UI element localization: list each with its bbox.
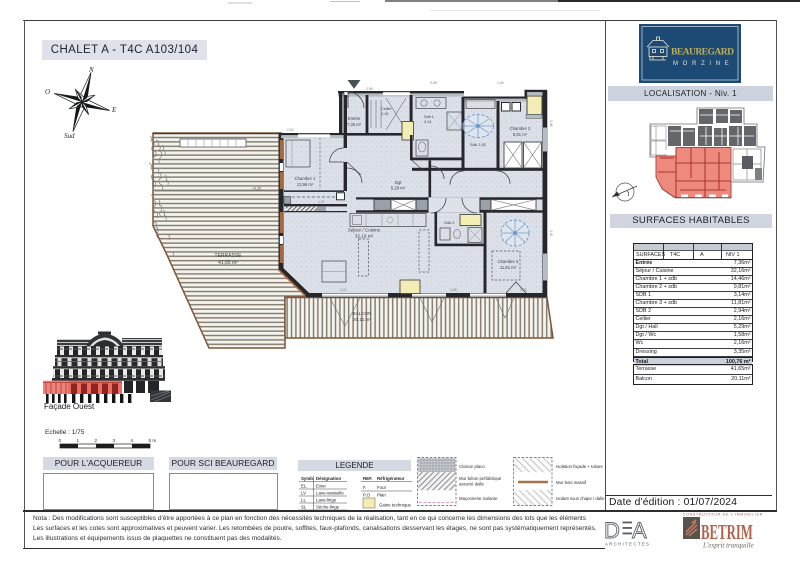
svg-text:2,16: 2,16 (381, 112, 388, 116)
svg-text:E: E (111, 106, 117, 114)
svg-text:Chambre 3: Chambre 3 (498, 259, 519, 264)
svg-text:Isolation façade + toiture: Isolation façade + toiture (556, 464, 604, 469)
svg-text:EL.: EL. (301, 484, 308, 489)
svg-text:3,65: 3,65 (450, 288, 457, 292)
svg-text:32,16 m²: 32,16 m² (355, 234, 374, 239)
svg-text:L'esprit tranquille: L'esprit tranquille (702, 542, 754, 550)
svg-text:3,91: 3,91 (549, 230, 553, 237)
svg-text:Sèche-linge: Sèche-linge (316, 505, 340, 510)
svg-text:Entrée: Entrée (348, 116, 361, 121)
svg-text:11,81 m²: 11,81 m² (500, 265, 517, 270)
svg-text:ARCHITECTES: ARCHITECTES (605, 542, 650, 547)
svg-text:P.O: P.O (363, 493, 371, 498)
svg-text:1,94: 1,94 (497, 81, 504, 85)
svg-text:CONSTRUCTEUR DE L'IMMOBILIER: CONSTRUCTEUR DE L'IMMOBILIER (683, 513, 763, 517)
svg-text:3: 3 (113, 438, 116, 443)
svg-text:Cellier: Cellier (381, 107, 392, 111)
svg-text:REF.: REF. (363, 476, 373, 481)
svg-text:Désignation: Désignation (316, 476, 341, 481)
svg-text:Maçonnerie isolante: Maçonnerie isolante (459, 496, 498, 501)
svg-text:20,11 m²: 20,11 m² (353, 317, 371, 322)
svg-text:5 m: 5 m (149, 438, 157, 443)
svg-text:Evier: Evier (316, 484, 327, 489)
svg-text:Gaine technique: Gaine technique (379, 503, 412, 508)
svg-text:12,96 m²: 12,96 m² (297, 182, 314, 187)
svg-text:Réfrigérateur: Réfrigérateur (377, 476, 405, 481)
svg-text:Sdb 2: Sdb 2 (444, 220, 455, 225)
svg-text:4: 4 (131, 438, 134, 443)
svg-text:3,46: 3,46 (549, 120, 553, 127)
svg-text:41,65 m²: 41,65 m² (218, 260, 238, 266)
svg-text:Four: Four (377, 485, 387, 490)
svg-text:BALCON: BALCON (353, 311, 372, 316)
svg-text:Séjour / Cuisine: Séjour / Cuisine (348, 228, 381, 233)
svg-text:Mur bois massif: Mur bois massif (556, 480, 587, 485)
svg-text:F.: F. (363, 485, 366, 490)
svg-text:Cloison placo: Cloison placo (459, 464, 485, 469)
svg-text:Isolant sous chape / dalle: Isolant sous chape / dalle (556, 496, 605, 501)
svg-text:Sdb 2,92: Sdb 2,92 (470, 142, 487, 147)
svg-text:3,06: 3,06 (430, 81, 437, 85)
svg-text:3,14: 3,14 (424, 120, 431, 124)
svg-text:TERRASSE: TERRASSE (215, 253, 243, 259)
svg-text:1,57: 1,57 (318, 200, 325, 204)
svg-text:2,62: 2,62 (287, 128, 294, 132)
svg-text:BETRIM: BETRIM (701, 521, 753, 544)
svg-text:SL: SL (301, 505, 307, 510)
svg-text:Dgt: Dgt (395, 180, 402, 185)
svg-text:MORZINE: MORZINE (673, 61, 731, 67)
svg-text:+0,35: +0,35 (252, 187, 261, 191)
svg-text:Chambre 1: Chambre 1 (295, 176, 316, 181)
svg-text:1: 1 (77, 438, 80, 443)
svg-text:Lave-linge: Lave-linge (316, 498, 337, 503)
svg-text:BEAUREGARD: BEAUREGARD (671, 47, 734, 58)
svg-text:Plan: Plan (377, 493, 386, 498)
svg-text:2,96: 2,96 (366, 87, 373, 91)
svg-text:Sud: Sud (64, 132, 75, 140)
svg-text:LV: LV (301, 491, 306, 496)
svg-text:associé dalle: associé dalle (459, 482, 484, 487)
svg-text:Mur béton préfabriqué: Mur béton préfabriqué (459, 476, 502, 481)
svg-text:9,81 m²: 9,81 m² (513, 132, 528, 137)
svg-text:0: 0 (59, 438, 62, 443)
svg-text:2: 2 (95, 438, 98, 443)
svg-text:A: A (632, 518, 647, 543)
svg-text:Sdb 1: Sdb 1 (424, 115, 434, 119)
svg-text:O: O (45, 88, 50, 96)
svg-text:5,29 m²: 5,29 m² (391, 186, 406, 191)
svg-text:LL: LL (301, 498, 306, 503)
svg-text:2,96: 2,96 (520, 288, 527, 292)
svg-text:D: D (604, 518, 620, 543)
svg-text:Symb.: Symb. (301, 476, 314, 481)
svg-text:3,24: 3,24 (340, 288, 347, 292)
svg-text:Chambre 2: Chambre 2 (510, 126, 531, 131)
svg-text:Lave-vaisselle: Lave-vaisselle (316, 491, 344, 496)
svg-text:7,36 m²: 7,36 m² (347, 122, 362, 127)
svg-text:N: N (88, 66, 94, 74)
